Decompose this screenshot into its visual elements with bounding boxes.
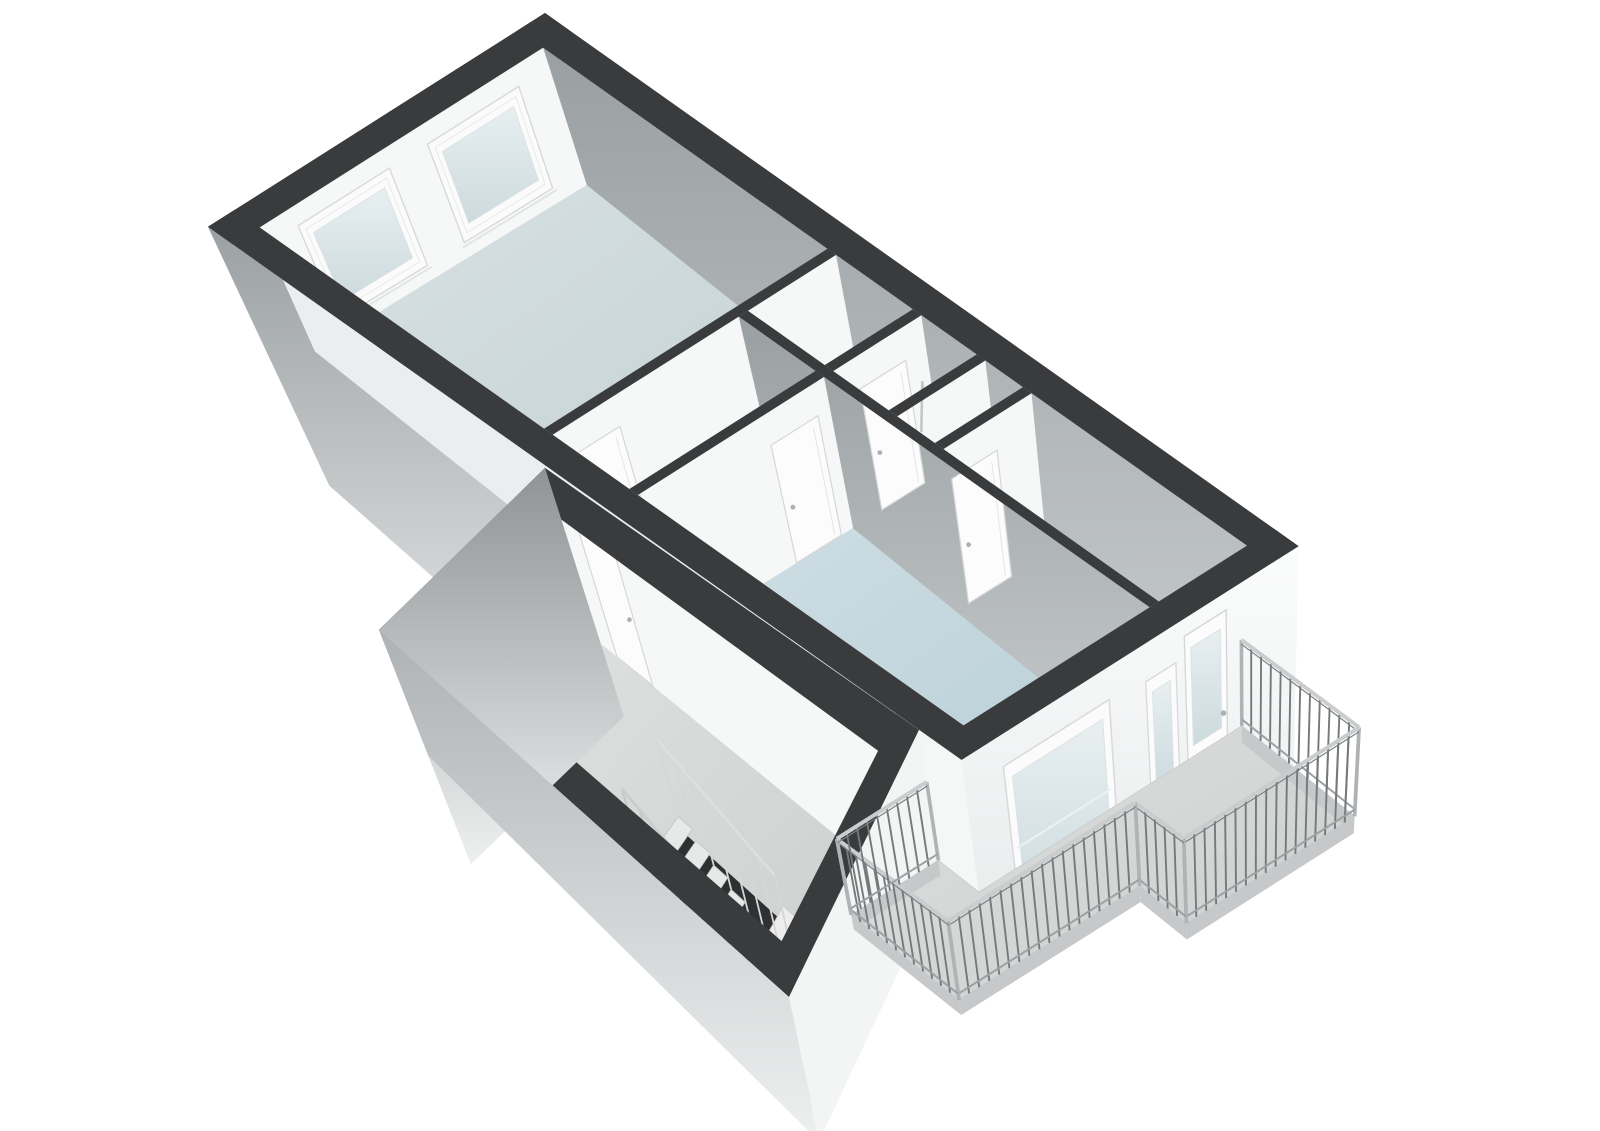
floorplan-3d-render xyxy=(0,0,1600,1131)
floorplan-page xyxy=(0,0,1600,1131)
floorplan-svg xyxy=(0,0,1600,1131)
